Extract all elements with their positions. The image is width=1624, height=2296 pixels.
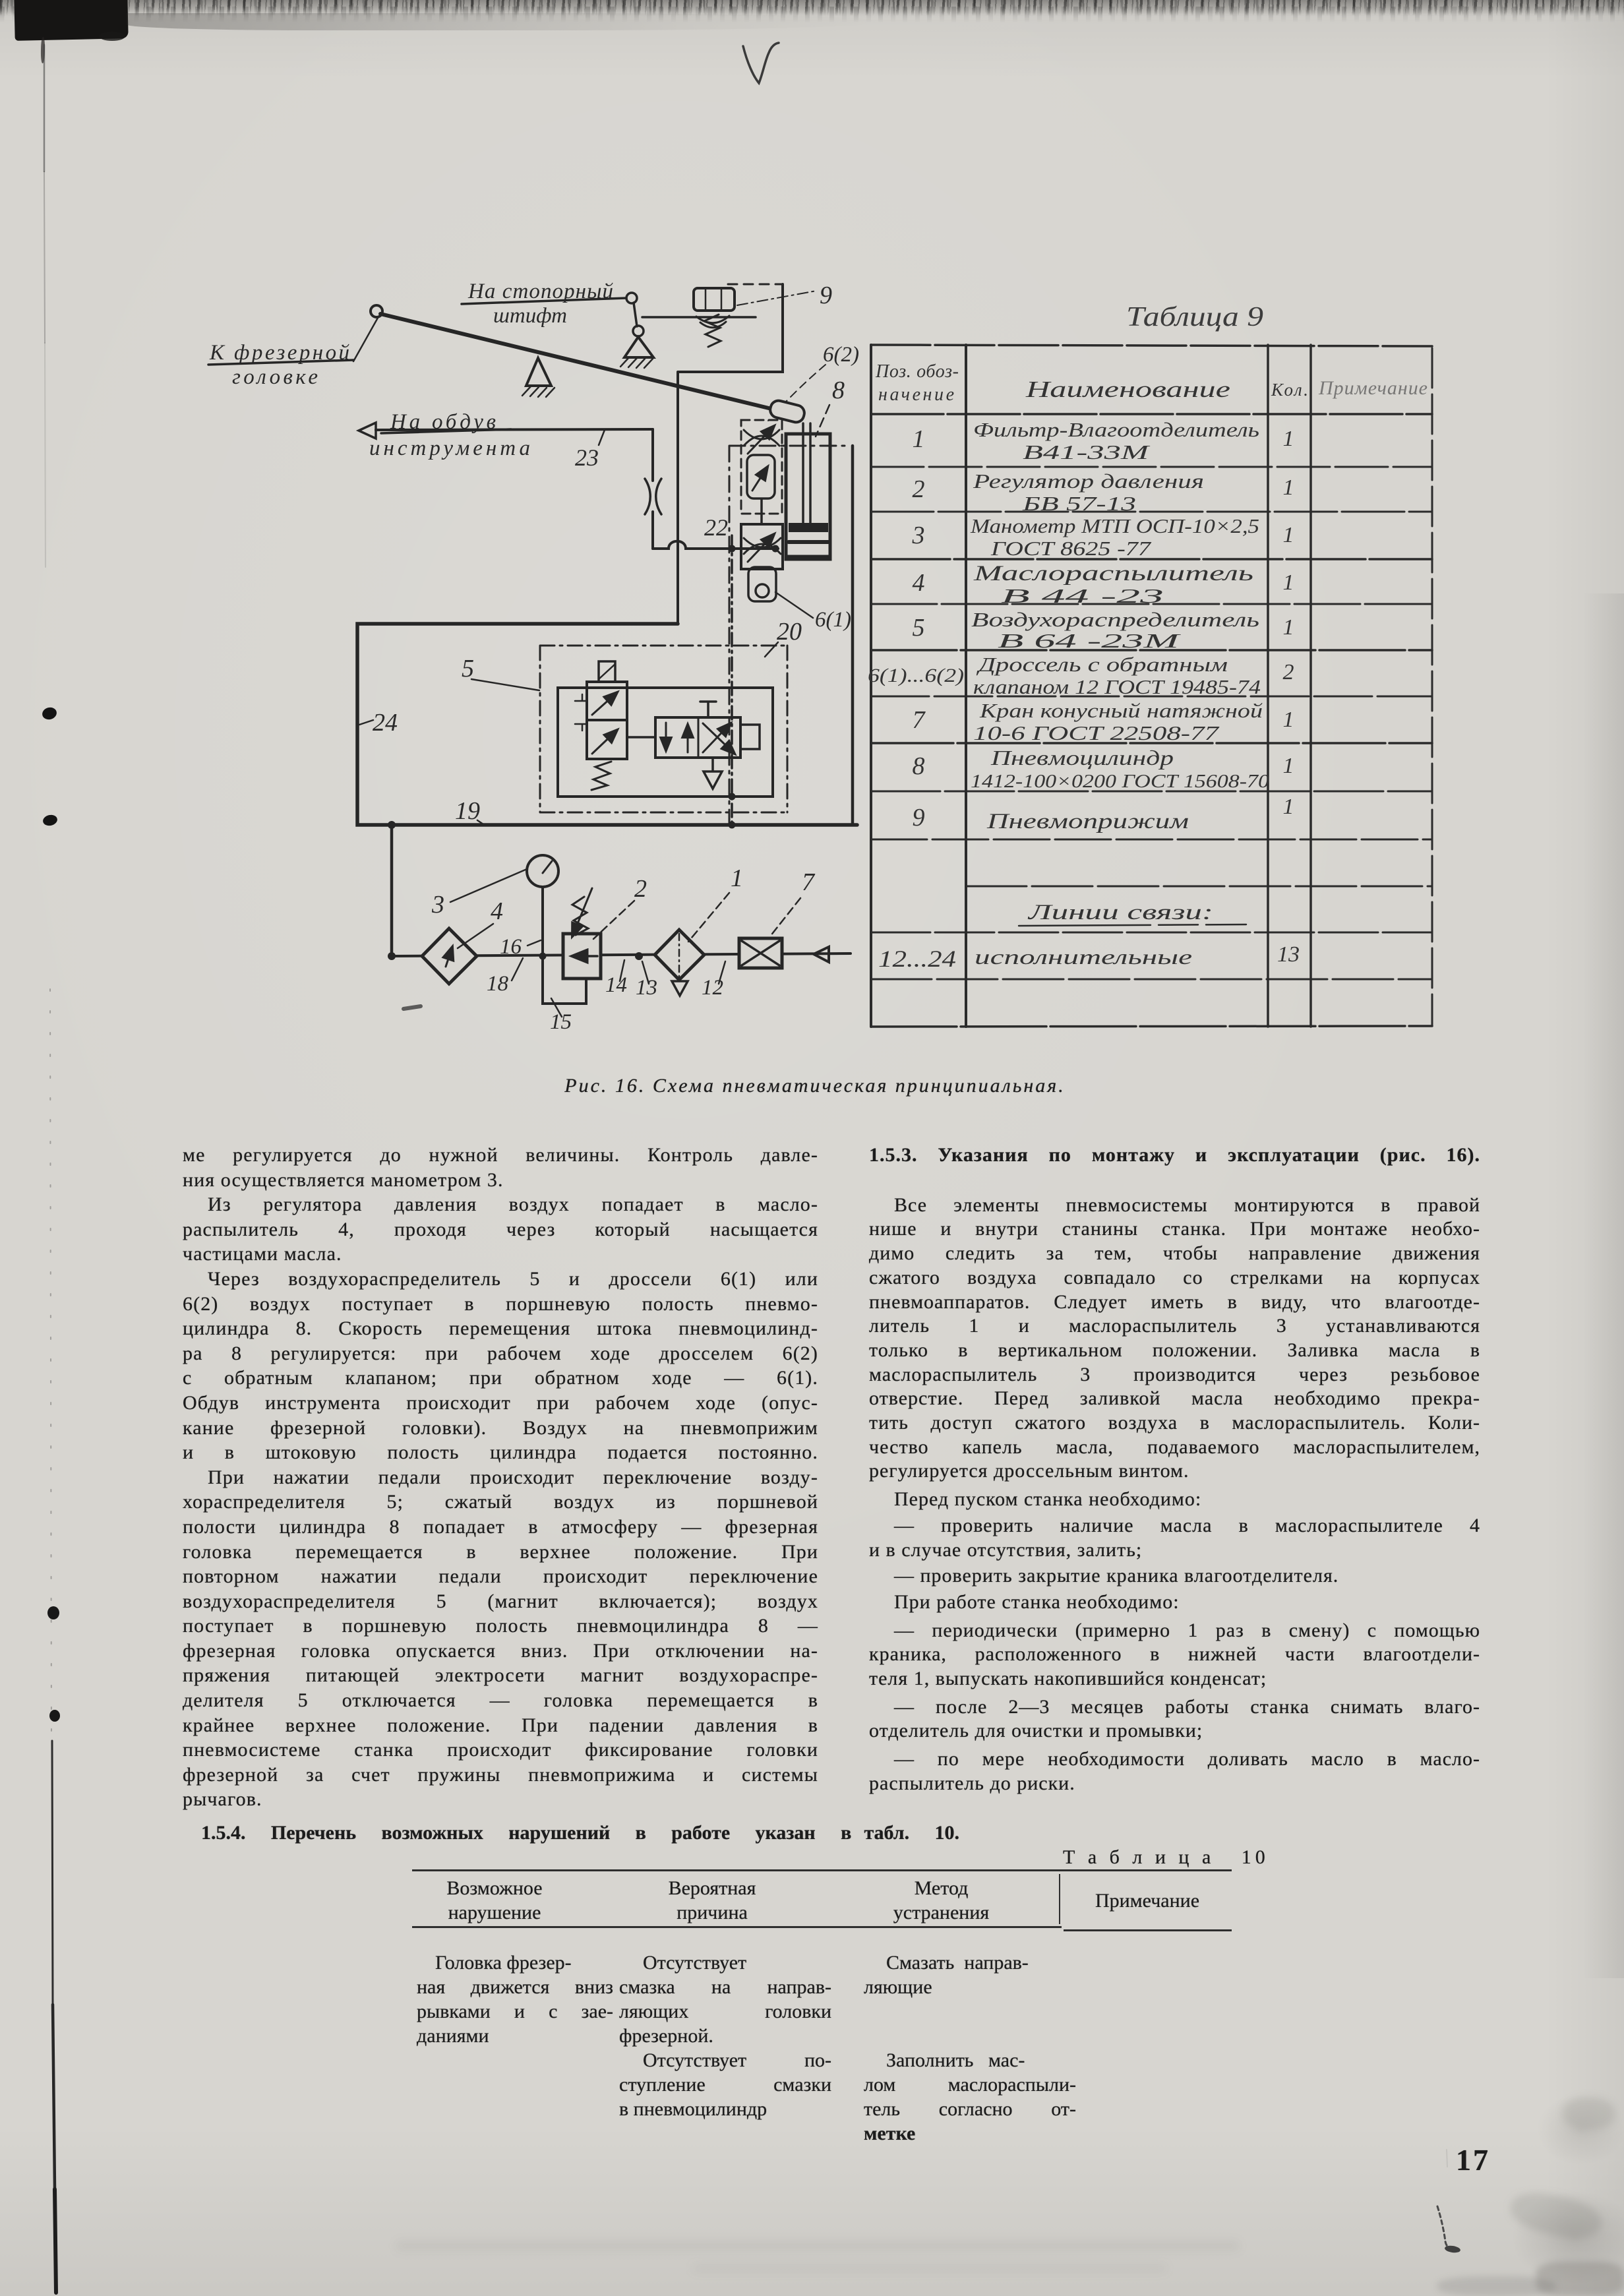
svg-text:8: 8 xyxy=(913,752,925,780)
svg-text:В 64 -23М: В 64 -23М xyxy=(998,629,1182,652)
svg-text:Пневмоприжим: Пневмоприжим xyxy=(986,810,1189,833)
svg-text:1: 1 xyxy=(1283,427,1294,451)
svg-text:1412-100×0200 ГОСТ 15608-70: 1412-100×0200 ГОСТ 15608-70 xyxy=(971,771,1270,792)
svg-text:4: 4 xyxy=(491,897,503,925)
svg-text:6(1)...6(2): 6(1)...6(2) xyxy=(868,665,964,686)
svg-text:12...24: 12...24 xyxy=(878,946,956,972)
svg-text:5: 5 xyxy=(462,655,474,682)
svg-text:5: 5 xyxy=(913,614,925,642)
svg-text:1: 1 xyxy=(1283,754,1294,778)
svg-text:13: 13 xyxy=(636,976,657,1000)
svg-text:1: 1 xyxy=(1283,615,1294,640)
svg-text:Наименование: Наименование xyxy=(1025,377,1230,402)
svg-text:Регулятор давления: Регулятор давления xyxy=(973,469,1204,493)
svg-text:Пневмоцилиндр: Пневмоцилиндр xyxy=(990,746,1174,770)
svg-text:Поз. обоз-: Поз. обоз- xyxy=(875,361,959,382)
svg-text:13: 13 xyxy=(1277,942,1300,967)
svg-text:штифт: штифт xyxy=(493,304,567,328)
svg-text:2: 2 xyxy=(634,875,647,903)
svg-text:Дроссель с обратным: Дроссель с обратным xyxy=(976,653,1228,676)
svg-text:1: 1 xyxy=(1283,795,1294,819)
svg-text:8: 8 xyxy=(832,377,845,404)
svg-text:10-6 ГОСТ 22508-77: 10-6 ГОСТ 22508-77 xyxy=(973,721,1220,744)
svg-text:Таблица 9: Таблица 9 xyxy=(1126,302,1263,332)
svg-text:3: 3 xyxy=(431,891,444,919)
svg-text:18: 18 xyxy=(487,972,509,996)
svg-text:20: 20 xyxy=(777,618,802,646)
svg-text:22: 22 xyxy=(704,514,728,541)
svg-text:4: 4 xyxy=(913,569,925,597)
svg-text:1: 1 xyxy=(1283,708,1294,732)
svg-text:1: 1 xyxy=(1283,523,1294,547)
svg-text:6(2): 6(2) xyxy=(823,343,859,367)
svg-text:16: 16 xyxy=(500,935,522,959)
svg-text:2: 2 xyxy=(1283,660,1294,684)
svg-text:Маслораспылитель: Маслораспылитель xyxy=(973,562,1253,586)
svg-text:1: 1 xyxy=(913,425,925,453)
svg-text:1: 1 xyxy=(1283,570,1294,595)
svg-text:1: 1 xyxy=(731,864,743,892)
svg-text:Воздухораспределитель: Воздухораспределитель xyxy=(971,608,1259,631)
svg-text:Кол.: Кол. xyxy=(1271,380,1308,400)
svg-text:6(1): 6(1) xyxy=(815,608,851,632)
svg-text:В41-33М: В41-33М xyxy=(1023,440,1151,464)
svg-text:инструмента: инструмента xyxy=(369,437,530,460)
svg-text:23: 23 xyxy=(575,444,599,471)
svg-text:начение: начение xyxy=(878,384,954,405)
svg-text:клапаном 12 ГОСТ 19485-74: клапаном 12 ГОСТ 19485-74 xyxy=(973,675,1261,698)
svg-text:2: 2 xyxy=(913,475,925,503)
svg-text:В 44 -23: В 44 -23 xyxy=(1001,584,1164,607)
svg-text:3: 3 xyxy=(912,522,925,549)
svg-text:Примечание: Примечание xyxy=(1318,377,1428,399)
svg-text:9: 9 xyxy=(820,282,832,309)
svg-text:исполнительные: исполнительные xyxy=(975,945,1192,969)
svg-text:головке: головке xyxy=(232,365,318,389)
svg-text:19: 19 xyxy=(455,797,480,825)
svg-text:1: 1 xyxy=(1283,475,1294,500)
svg-text:Манометр МТП ОСП-10×2,5: Манометр МТП ОСП-10×2,5 xyxy=(970,514,1259,537)
svg-text:ГОСТ 8625 -77: ГОСТ 8625 -77 xyxy=(990,537,1152,560)
svg-text:24: 24 xyxy=(373,709,398,737)
svg-text:Фильтр-Влагоотделитель: Фильтр-Влагоотделитель xyxy=(973,418,1259,441)
svg-text:7: 7 xyxy=(802,868,816,896)
svg-text:БВ 57-13: БВ 57-13 xyxy=(1022,492,1136,515)
svg-text:7: 7 xyxy=(913,706,926,734)
svg-text:Линии связи:: Линии связи: xyxy=(1027,901,1213,924)
svg-text:Кран конусный натяжной: Кран конусный натяжной xyxy=(979,699,1263,722)
svg-text:14: 14 xyxy=(605,973,627,997)
svg-text:9: 9 xyxy=(913,804,925,831)
